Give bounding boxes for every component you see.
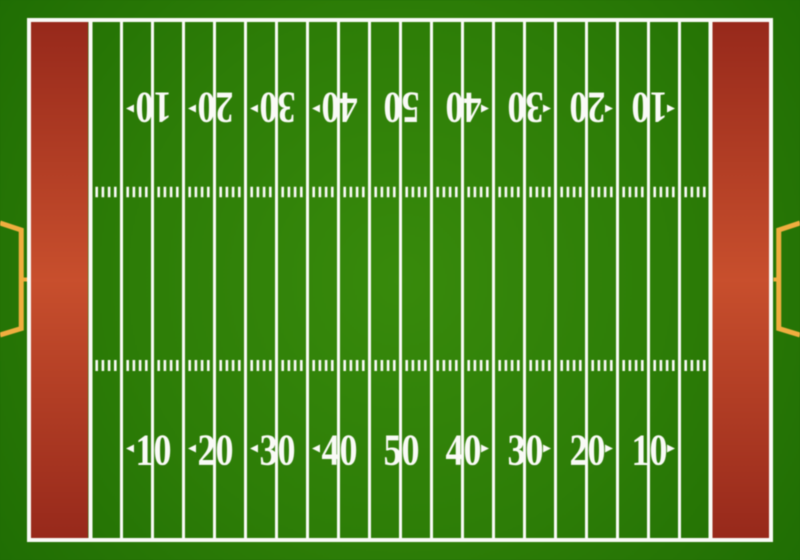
svg-text:20: 20 xyxy=(569,425,605,474)
svg-text:30: 30 xyxy=(507,83,543,132)
svg-text:10: 10 xyxy=(135,83,171,132)
svg-text:40: 40 xyxy=(445,83,481,132)
svg-text:40: 40 xyxy=(445,425,481,474)
svg-text:50: 50 xyxy=(383,425,419,474)
svg-text:30: 30 xyxy=(259,83,295,132)
svg-text:20: 20 xyxy=(569,83,605,132)
svg-text:40: 40 xyxy=(321,425,357,474)
svg-text:40: 40 xyxy=(321,83,357,132)
svg-text:50: 50 xyxy=(383,83,419,132)
svg-text:10: 10 xyxy=(631,83,667,132)
svg-text:10: 10 xyxy=(135,425,171,474)
svg-text:30: 30 xyxy=(259,425,295,474)
svg-text:20: 20 xyxy=(197,425,233,474)
svg-text:30: 30 xyxy=(507,425,543,474)
svg-text:20: 20 xyxy=(197,83,233,132)
svg-text:10: 10 xyxy=(631,425,667,474)
